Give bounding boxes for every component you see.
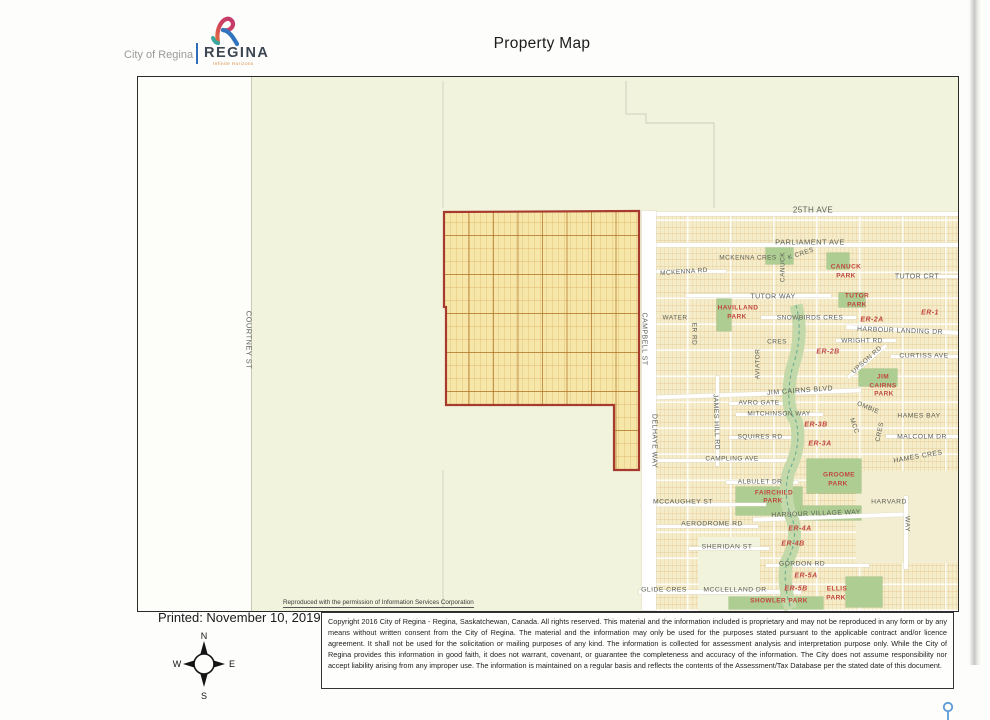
page-title: Property Map xyxy=(412,35,672,53)
street-segment xyxy=(641,503,766,506)
regina-wordmark: REGINA xyxy=(204,45,269,61)
compass-rose-icon: N S W E xyxy=(168,628,248,706)
street-segment xyxy=(729,402,783,405)
park-area xyxy=(827,253,849,269)
street-segment xyxy=(651,525,758,528)
street-segment xyxy=(641,212,958,216)
scanned-property-map-page: City of Regina REGINA Infinite Horizons … xyxy=(0,0,990,720)
map-area-outside-city xyxy=(138,77,251,611)
street-segment xyxy=(689,547,769,550)
logo-tagline: Infinite Horizons xyxy=(213,61,254,66)
street-segment xyxy=(904,496,908,569)
street-segment xyxy=(729,436,791,439)
street-segment xyxy=(836,339,896,342)
street-segment xyxy=(639,590,801,594)
street-segment xyxy=(651,459,796,462)
compass-w: W xyxy=(173,659,182,669)
scan-page-edge xyxy=(969,0,981,665)
street-segment xyxy=(891,355,958,358)
city-of-regina-text: City of Regina xyxy=(124,49,193,61)
compass-s: S xyxy=(201,691,207,701)
location-pin-icon xyxy=(938,700,958,720)
park-area xyxy=(717,299,731,331)
park-area xyxy=(807,459,861,493)
street-segment xyxy=(642,211,656,610)
property-map-canvas[interactable] xyxy=(137,76,959,612)
park-area xyxy=(736,487,802,515)
attribution-note: Reproduced with the permission of Inform… xyxy=(283,599,474,608)
street-segment xyxy=(686,294,831,297)
stepped-boundary-line xyxy=(626,81,714,208)
printed-date: Printed: November 10, 2019 xyxy=(158,610,321,625)
courtney-street-line xyxy=(251,77,252,611)
park-area xyxy=(859,369,897,386)
compass-e: E xyxy=(229,659,235,669)
copyright-disclaimer: Copyright 2016 City of Regina - Regina, … xyxy=(321,612,954,689)
park-area xyxy=(846,577,882,607)
street-segment xyxy=(736,413,823,416)
street-segment xyxy=(766,564,869,567)
regina-logo-icon xyxy=(203,12,245,48)
logo-divider xyxy=(196,43,198,64)
park-area xyxy=(729,597,823,609)
highlighted-parcel[interactable] xyxy=(444,211,639,470)
street-segment xyxy=(716,376,719,466)
street-segment xyxy=(896,275,958,278)
street-segment xyxy=(886,435,958,438)
street-segment xyxy=(761,316,856,319)
street-segment xyxy=(656,243,958,247)
park-area xyxy=(839,293,865,307)
street-segment xyxy=(646,270,726,273)
park-area xyxy=(766,244,793,264)
street-segment xyxy=(726,481,798,484)
compass-n: N xyxy=(201,631,208,641)
